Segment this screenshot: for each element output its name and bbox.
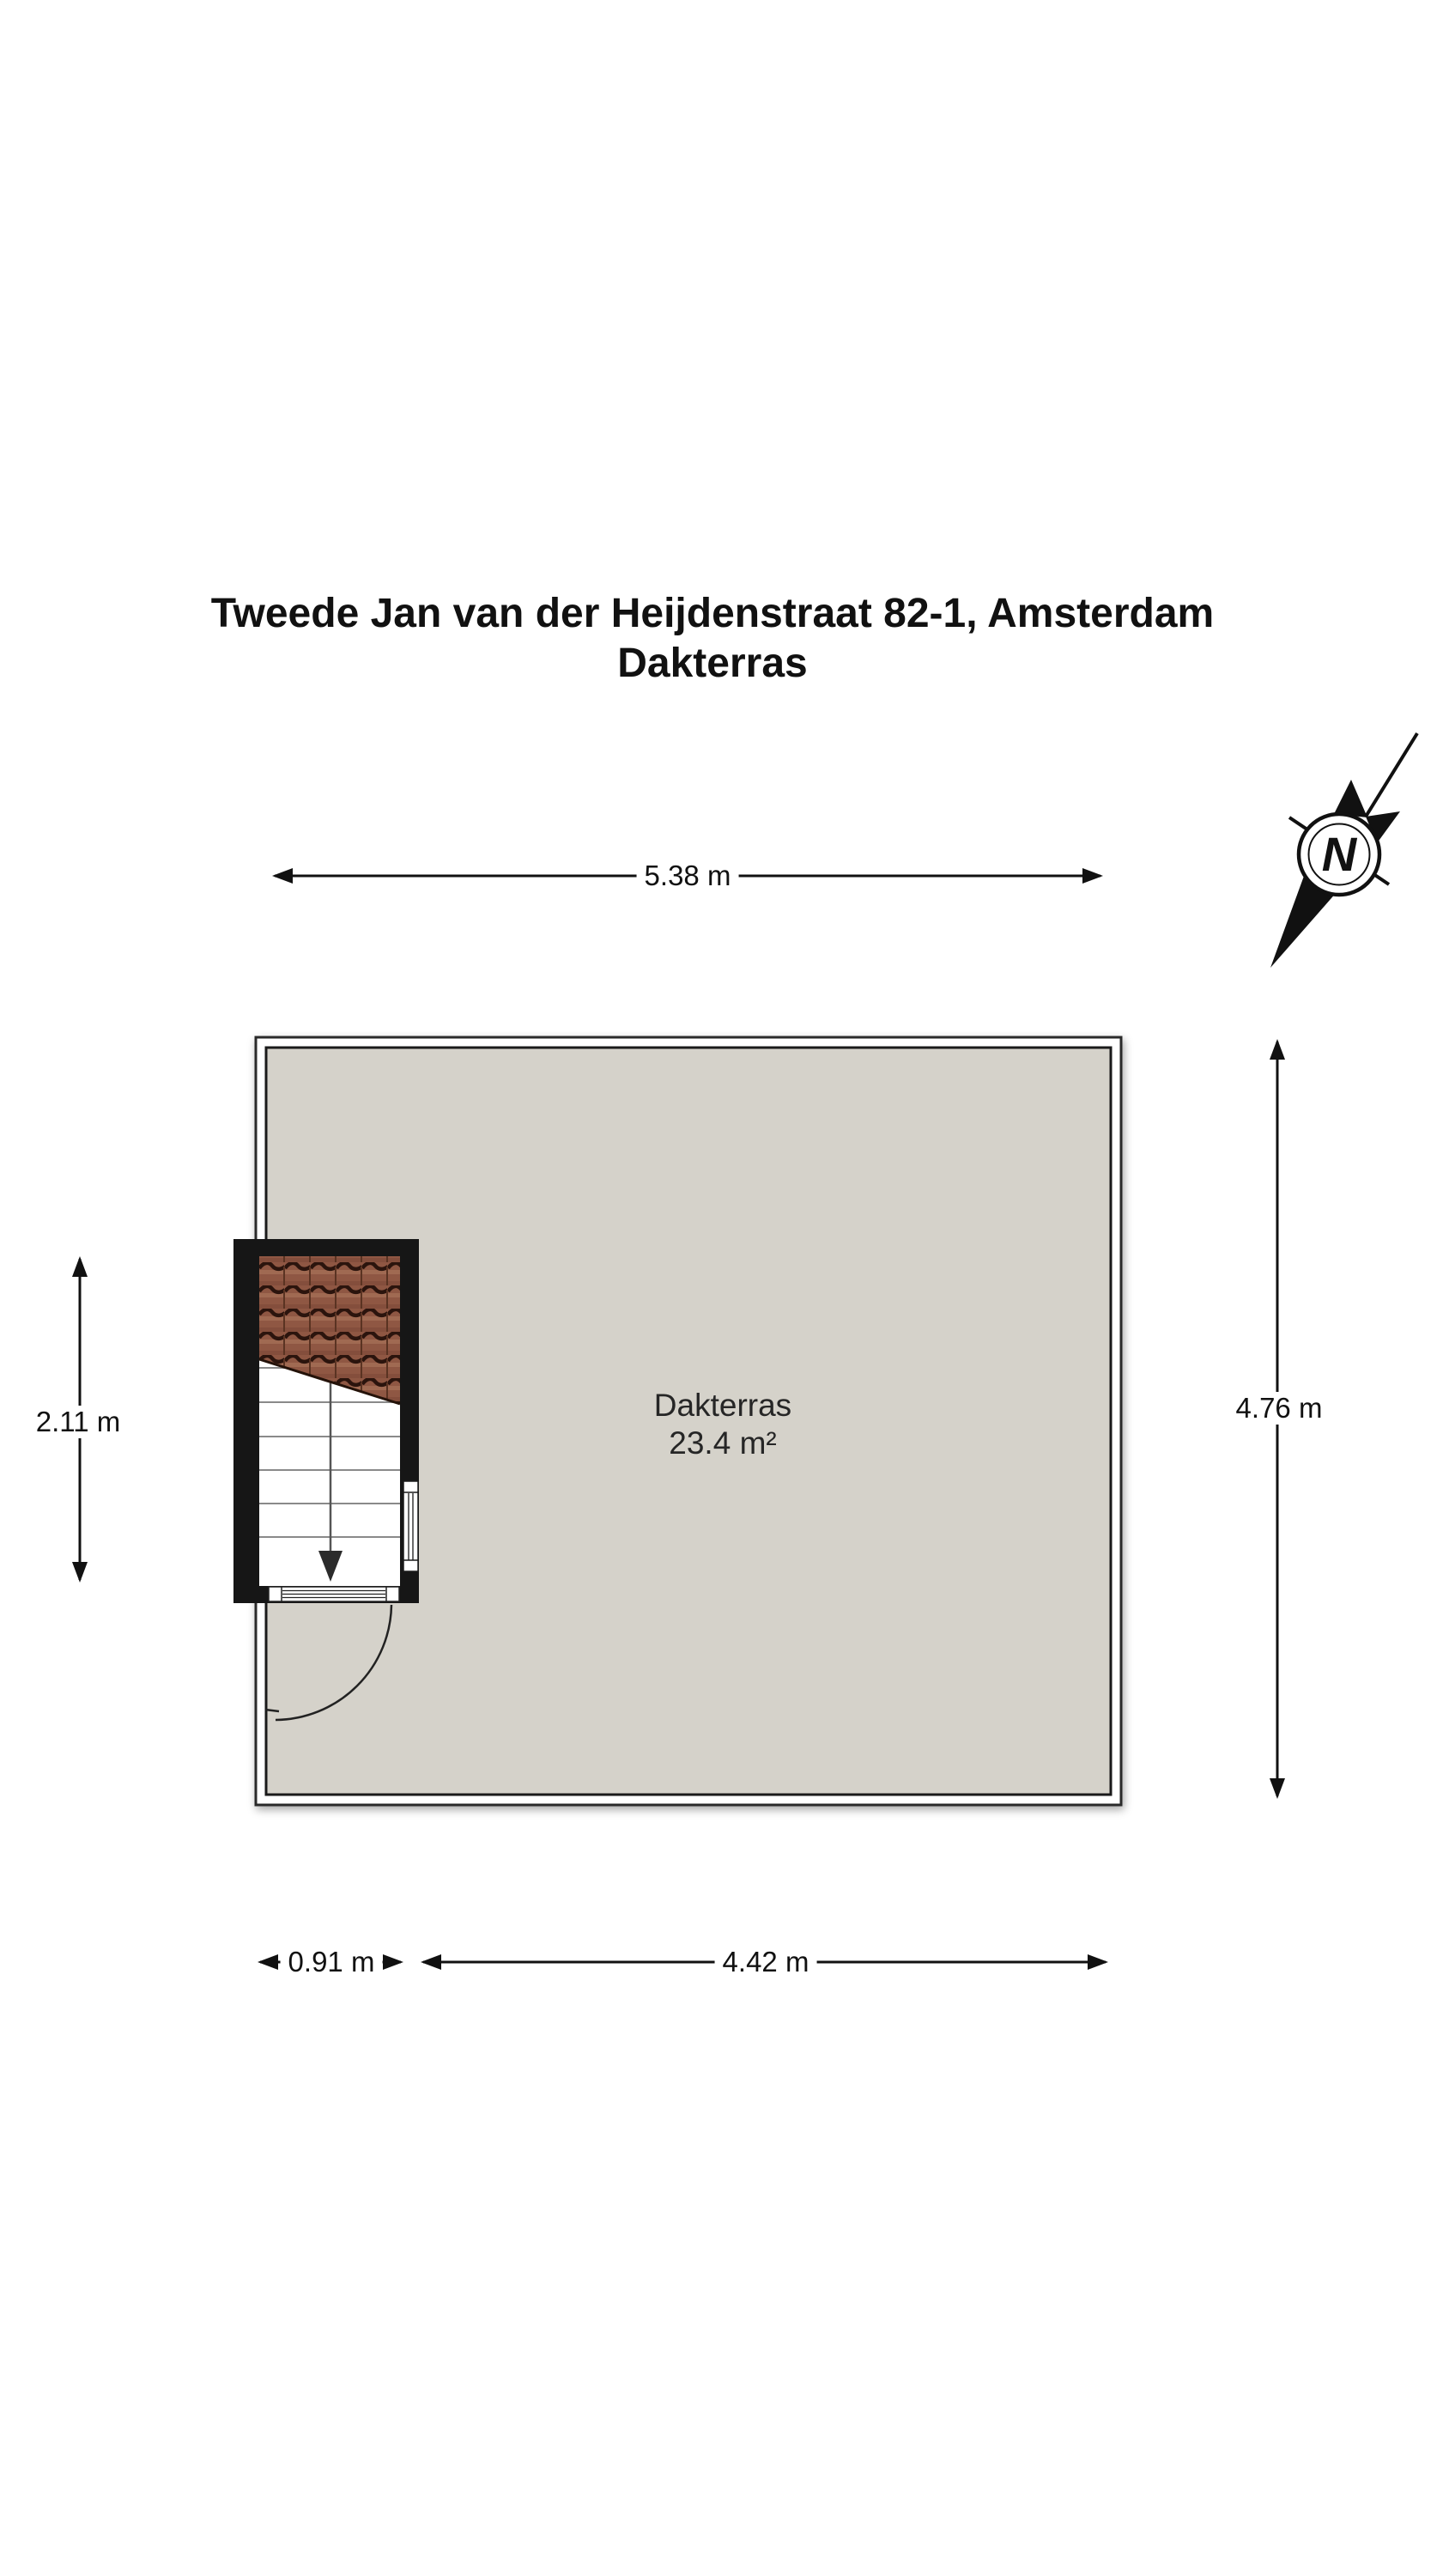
floorplan-drawing <box>0 0 1449 2576</box>
compass-north-label: N <box>1322 826 1356 882</box>
stairwell <box>233 1239 419 1603</box>
dimension-label-right: 4.76 m <box>1228 1392 1331 1425</box>
dimension-label-bottom-large: 4.42 m <box>715 1946 817 1978</box>
floorplan-page: Tweede Jan van der Heijdenstraat 82-1, A… <box>0 0 1449 2576</box>
dimension-label-bottom-small: 0.91 m <box>281 1946 383 1978</box>
door-threshold <box>269 1587 399 1601</box>
room-area: 23.4 m² <box>654 1425 791 1462</box>
window <box>403 1481 418 1571</box>
room-name: Dakterras <box>654 1387 791 1425</box>
room-label: Dakterras 23.4 m² <box>654 1387 791 1462</box>
dimension-label-top: 5.38 m <box>637 860 739 892</box>
dimension-label-left: 2.11 m <box>28 1406 128 1438</box>
